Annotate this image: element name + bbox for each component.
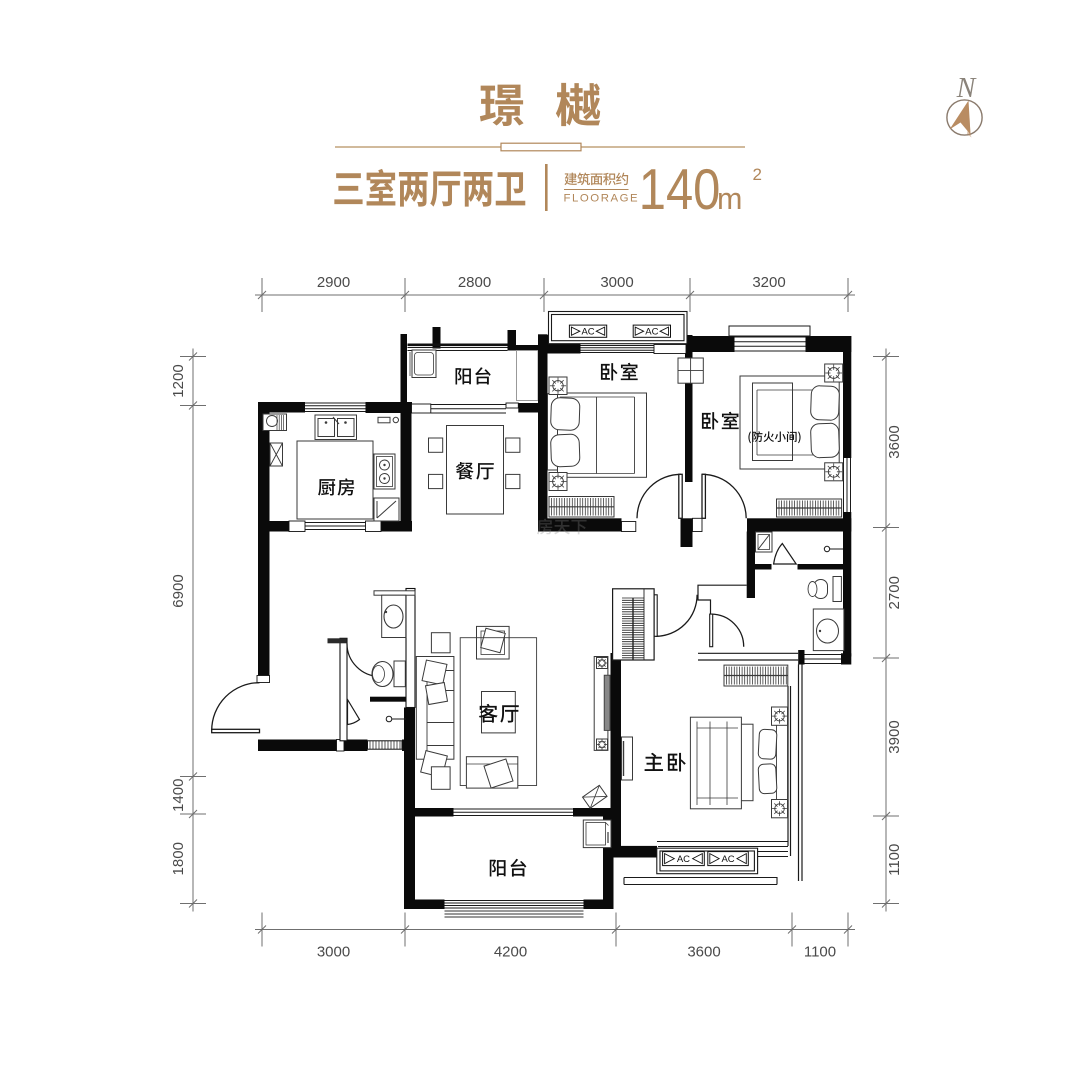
svg-text:3900: 3900 — [886, 720, 903, 753]
svg-text:3200: 3200 — [752, 274, 785, 291]
svg-text:140: 140 — [639, 158, 721, 222]
svg-text:AC: AC — [677, 854, 690, 865]
svg-text:2800: 2800 — [458, 274, 491, 291]
svg-text:3600: 3600 — [687, 944, 720, 961]
svg-text:3000: 3000 — [600, 274, 633, 291]
svg-text:2700: 2700 — [886, 576, 903, 609]
svg-text:m: m — [717, 182, 742, 216]
svg-text:2900: 2900 — [317, 274, 350, 291]
svg-text:FLOORAGE: FLOORAGE — [564, 193, 640, 205]
svg-text:3000: 3000 — [317, 944, 350, 961]
svg-text:4200: 4200 — [494, 944, 527, 961]
svg-text:1400: 1400 — [170, 779, 187, 812]
svg-text:3600: 3600 — [886, 425, 903, 458]
svg-text:1100: 1100 — [886, 844, 903, 876]
svg-text:AC: AC — [645, 327, 658, 338]
svg-text:1100: 1100 — [804, 944, 836, 961]
svg-text:1200: 1200 — [170, 364, 187, 397]
svg-text:1800: 1800 — [170, 842, 187, 875]
svg-text:AC: AC — [581, 327, 594, 338]
svg-text:6900: 6900 — [170, 574, 187, 607]
svg-text:AC: AC — [721, 854, 734, 865]
svg-text:2: 2 — [753, 165, 762, 184]
